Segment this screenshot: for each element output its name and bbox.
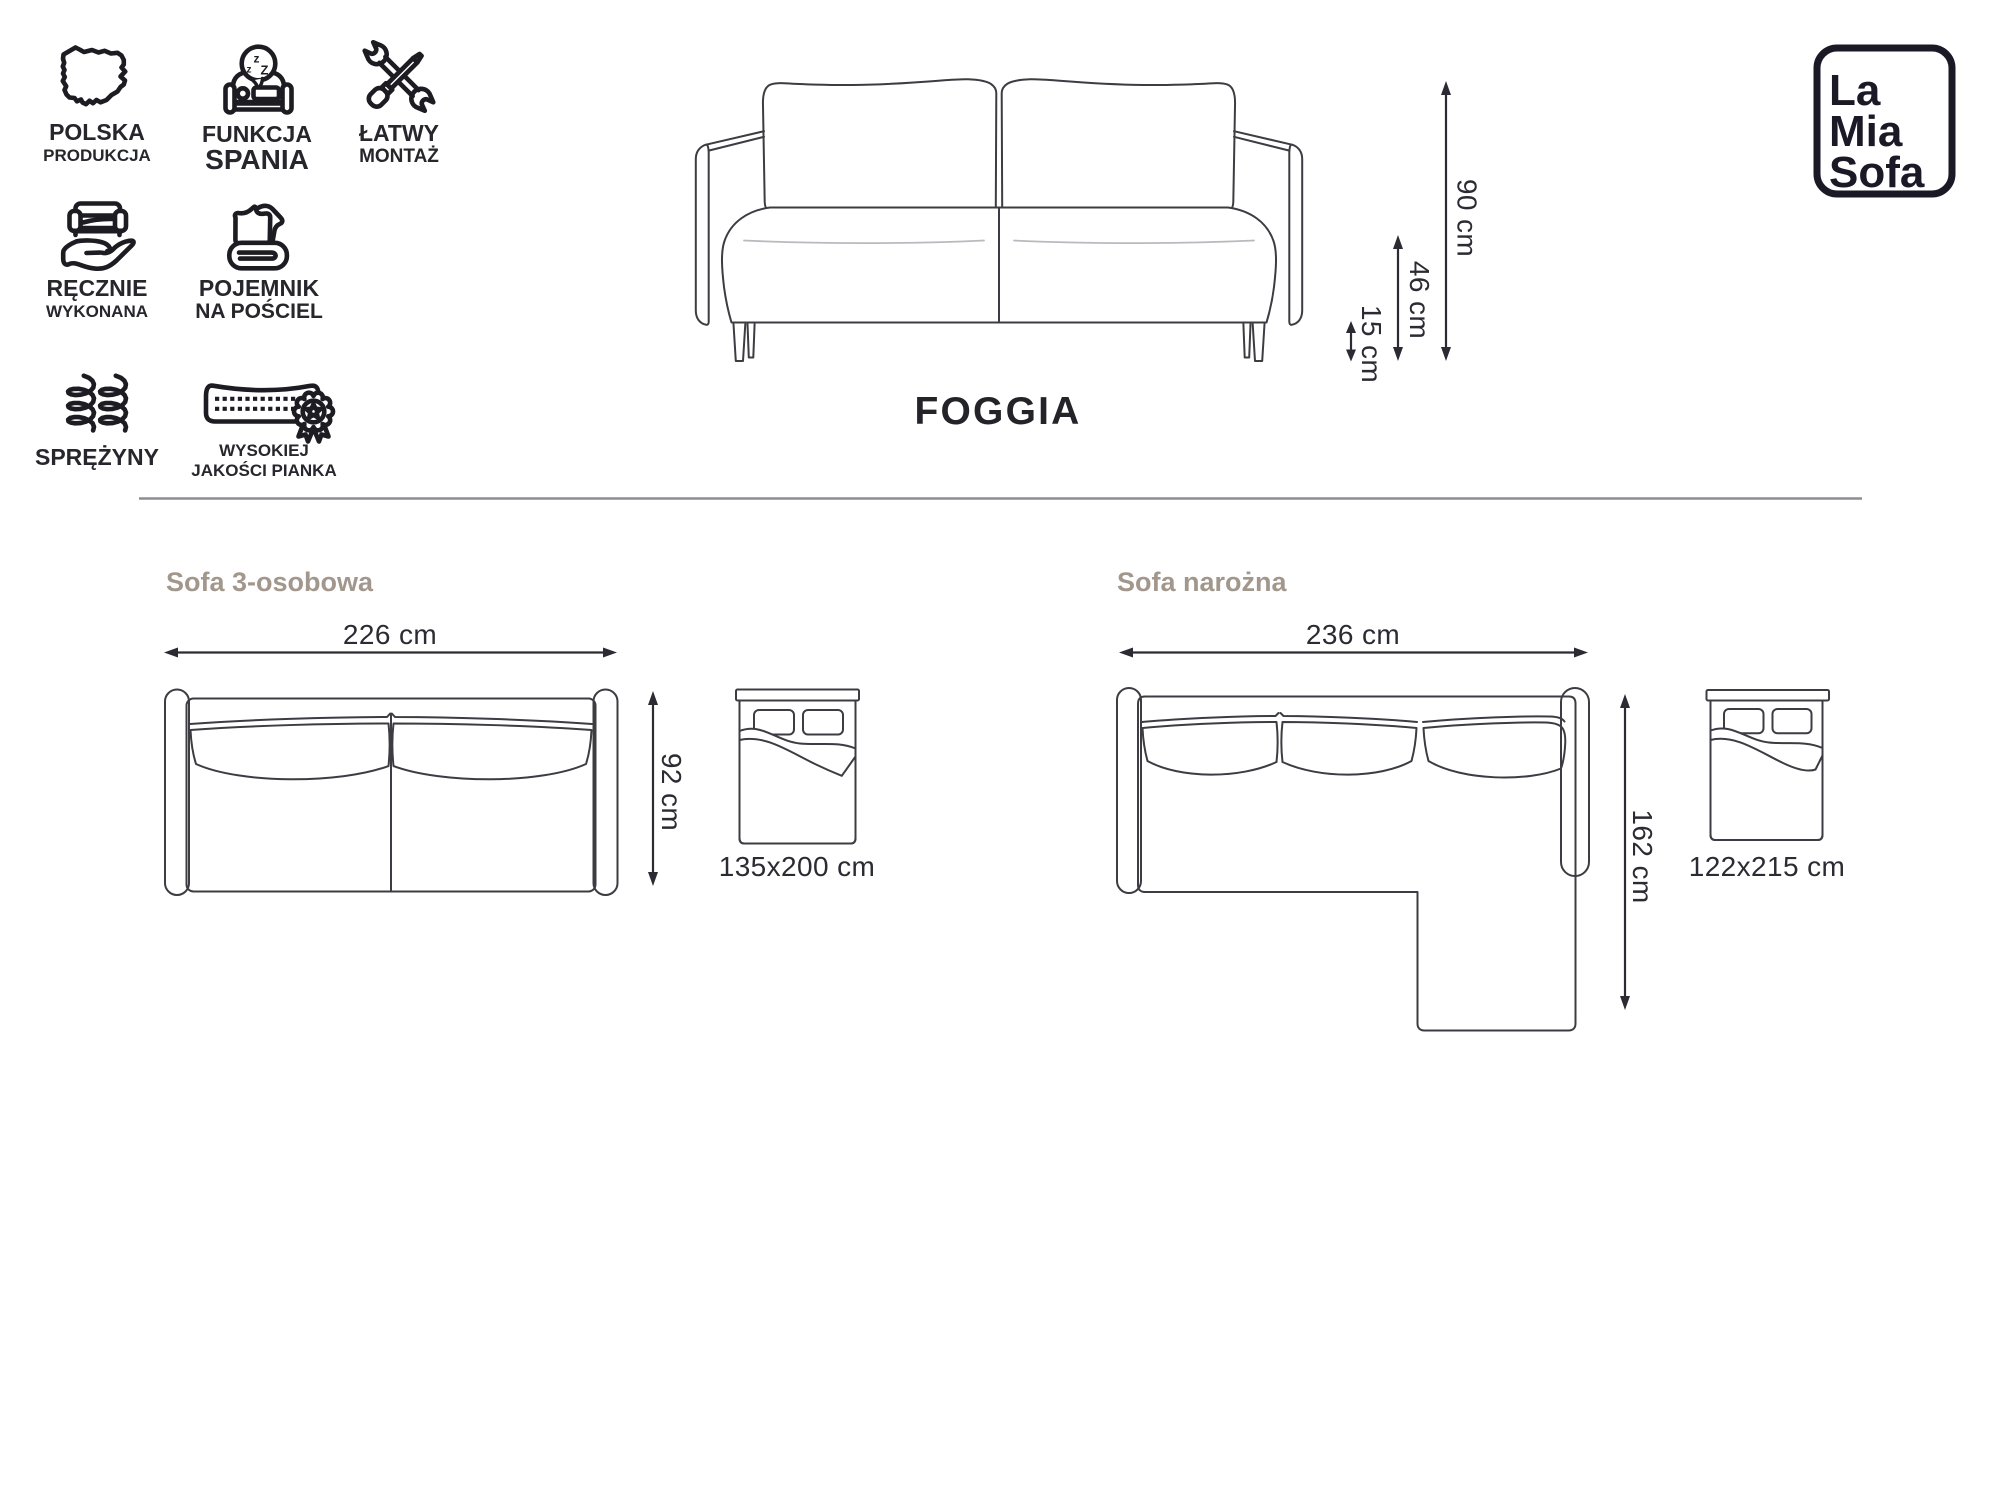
svg-text:WYSOKIEJ: WYSOKIEJ [219, 441, 309, 460]
svg-text:122x215 cm: 122x215 cm [1689, 851, 1846, 882]
svg-text:Sofa: Sofa [1829, 148, 1925, 197]
svg-text:SPRĘŻYNY: SPRĘŻYNY [35, 444, 159, 470]
svg-text:JAKOŚCI PIANKA: JAKOŚCI PIANKA [191, 461, 336, 480]
svg-text:162 cm: 162 cm [1627, 809, 1658, 903]
svg-text:NA POŚCIEL: NA POŚCIEL [195, 299, 323, 323]
svg-text:WYKONANA: WYKONANA [46, 302, 148, 321]
svg-text:SPANIA: SPANIA [205, 144, 309, 175]
svg-text:POJEMNIK: POJEMNIK [199, 275, 320, 301]
svg-text:RĘCZNIE: RĘCZNIE [47, 275, 148, 301]
svg-text:236 cm: 236 cm [1306, 619, 1400, 650]
svg-text:POLSKA: POLSKA [49, 119, 145, 145]
svg-text:PRODUKCJA: PRODUKCJA [43, 146, 151, 165]
svg-text:46 cm: 46 cm [1404, 261, 1435, 339]
svg-text:226 cm: 226 cm [343, 619, 437, 650]
svg-text:90 cm: 90 cm [1452, 179, 1483, 257]
svg-text:15 cm: 15 cm [1356, 305, 1387, 383]
svg-text:z: z [247, 65, 252, 76]
svg-text:ŁATWY: ŁATWY [359, 120, 439, 146]
svg-text:92 cm: 92 cm [656, 753, 687, 831]
svg-text:Sofa narożna: Sofa narożna [1117, 567, 1288, 597]
svg-text:Z: Z [261, 63, 269, 78]
svg-text:MONTAŻ: MONTAŻ [359, 146, 439, 167]
svg-text:z: z [254, 52, 260, 66]
svg-text:135x200 cm: 135x200 cm [719, 851, 876, 882]
svg-text:FOGGIA: FOGGIA [914, 390, 1081, 433]
svg-text:Sofa 3-osobowa: Sofa 3-osobowa [166, 567, 374, 597]
